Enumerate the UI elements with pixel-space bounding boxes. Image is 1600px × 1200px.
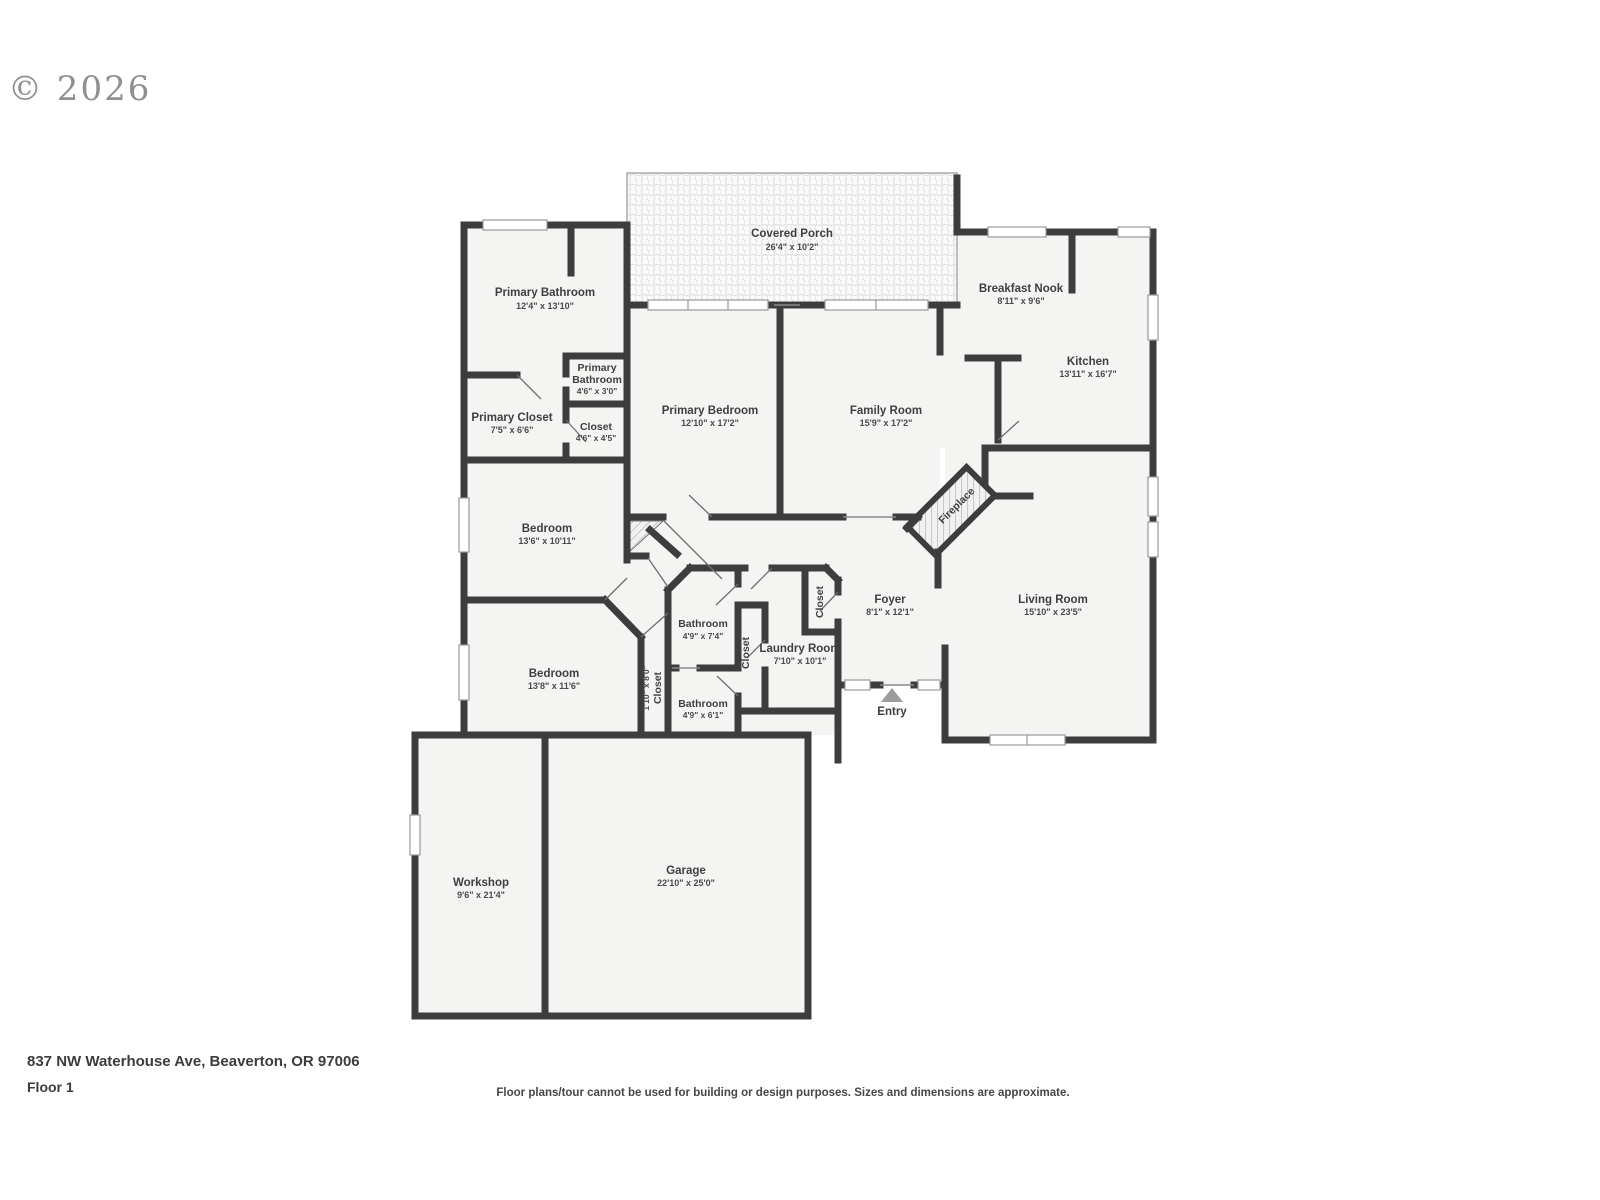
bathroom-lower-label: Bathroom: [678, 698, 728, 710]
primary-bedroom-label: Primary Bedroom: [662, 405, 759, 417]
kitchen-label: Kitchen: [1067, 356, 1109, 368]
floor-label: Floor 1: [27, 1079, 74, 1095]
primary-bathroom-small-label-2: Bathroom: [572, 374, 622, 386]
living-room-dims: 15'10" x 23'5": [1024, 607, 1082, 617]
closet-narrow-label: Closet: [652, 671, 664, 704]
entry-arrow-icon: [881, 688, 903, 702]
garage-dims: 22'10" x 25'0": [657, 878, 715, 888]
primary-closet-dims: 7'5" x 6'6": [491, 425, 534, 435]
floor-plan-page: Covered Porch 26'4" x 10'2" Primary Bath…: [0, 0, 1600, 1200]
entry-label: Entry: [877, 706, 907, 718]
bathroom-upper-label: Bathroom: [678, 618, 728, 630]
foyer-dims: 8'1" x 12'1": [866, 607, 914, 617]
bedroom-upper-dims: 13'6" x 10'11": [518, 536, 575, 546]
bedroom-lower-dims: 13'8" x 11'6": [528, 681, 580, 691]
workshop-label: Workshop: [453, 877, 509, 889]
primary-bedroom-dims: 12'10" x 17'2": [681, 418, 739, 428]
bathroom-lower-dims: 4'9" x 6'1": [683, 710, 723, 720]
floor-plan-svg: Covered Porch 26'4" x 10'2" Primary Bath…: [0, 0, 1600, 1200]
laundry-room-dims: 7'10" x 10'1": [774, 656, 827, 666]
bedroom-upper-label: Bedroom: [522, 523, 572, 535]
primary-bathroom-small-label-1: Primary: [577, 362, 616, 374]
disclaimer-text: Floor plans/tour cannot be used for buil…: [496, 1087, 1069, 1099]
laundry-room-label: Laundry Room: [759, 643, 840, 655]
covered-porch-label: Covered Porch: [751, 228, 833, 240]
covered-porch-dims: 26'4" x 10'2": [766, 242, 819, 252]
floor-areas: [415, 225, 1153, 1016]
closet-foyer-label: Closet: [814, 585, 826, 618]
primary-bathroom-dims: 12'4" x 13'10": [516, 301, 574, 311]
closet-hall-label: Closet: [740, 636, 752, 669]
living-room-label: Living Room: [1018, 594, 1088, 606]
foyer-label: Foyer: [874, 594, 906, 606]
workshop-dims: 9'6" x 21'4": [457, 890, 505, 900]
bedroom-lower-label: Bedroom: [529, 668, 579, 680]
closet-narrow-dims: 1'10" x 8'0": [641, 665, 651, 710]
closet-small-label: Closet: [580, 421, 613, 433]
primary-bathroom-small-dims: 4'6" x 3'0": [577, 386, 617, 396]
address-text: 837 NW Waterhouse Ave, Beaverton, OR 970…: [27, 1053, 360, 1070]
kitchen-dims: 13'11" x 16'7": [1059, 369, 1116, 379]
closet-small-dims: 4'6" x 4'5": [576, 433, 616, 443]
primary-closet-label: Primary Closet: [471, 412, 552, 424]
breakfast-nook-dims: 8'11" x 9'6": [997, 296, 1044, 306]
bathroom-upper-dims: 4'9" x 7'4": [683, 631, 723, 641]
breakfast-nook-label: Breakfast Nook: [979, 283, 1064, 295]
family-room-label: Family Room: [850, 405, 922, 417]
copyright-text: © 2026: [8, 69, 151, 109]
primary-bathroom-label: Primary Bathroom: [495, 287, 595, 299]
family-room-dims: 15'9" x 17'2": [860, 418, 913, 428]
garage-label: Garage: [666, 865, 706, 877]
